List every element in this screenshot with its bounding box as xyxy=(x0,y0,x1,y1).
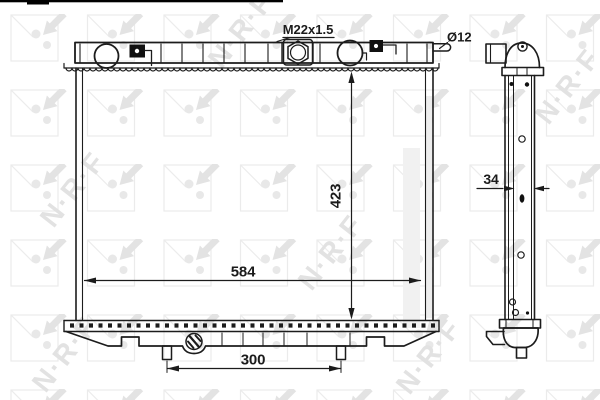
core-depth-label: 34 xyxy=(483,171,499,187)
core-width-label: 584 xyxy=(231,264,256,281)
thread-label: M22x1.5 xyxy=(283,22,334,37)
radiator-technical-drawing-page: N·R·F N·R·F N·R·F N·R·F N·R·F N·R·F xyxy=(0,0,600,400)
scan-shading xyxy=(403,148,420,328)
technical-drawing: N·R·F N·R·F N·R·F N·R·F N·R·F N·R·F xyxy=(0,0,600,400)
outlet-diameter-label: Ø12 xyxy=(447,30,472,45)
cap-button-dot xyxy=(521,45,524,48)
scan-shading-2 xyxy=(426,96,432,318)
pin-spacing-label: 300 xyxy=(241,352,265,369)
core-height-label: 423 xyxy=(328,184,345,208)
sensor-dot-left xyxy=(135,49,139,53)
sensor-dot-right xyxy=(374,44,378,48)
